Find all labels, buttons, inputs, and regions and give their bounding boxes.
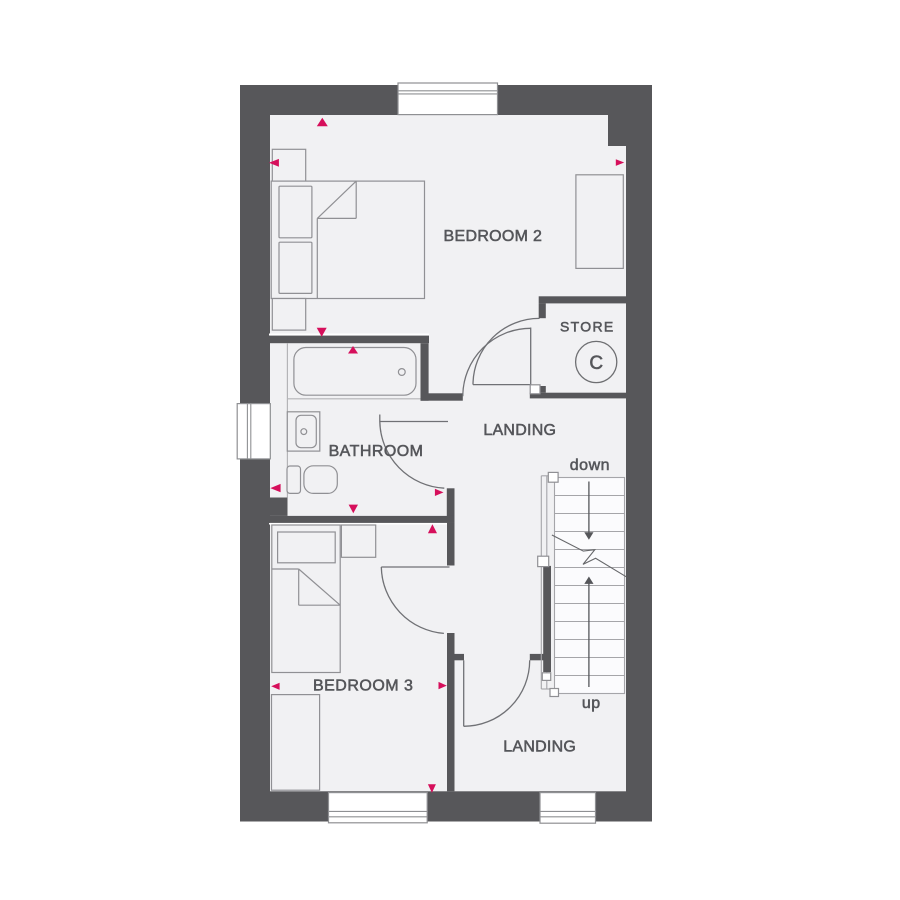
svg-text:BEDROOM 2: BEDROOM 2 bbox=[444, 228, 543, 245]
svg-text:down: down bbox=[570, 457, 610, 474]
svg-text:STORE: STORE bbox=[560, 318, 614, 334]
svg-text:LANDING: LANDING bbox=[483, 422, 556, 439]
svg-text:BEDROOM 3: BEDROOM 3 bbox=[313, 678, 414, 695]
svg-text:C: C bbox=[589, 353, 603, 374]
svg-text:BATHROOM: BATHROOM bbox=[329, 443, 424, 460]
svg-text:up: up bbox=[582, 695, 601, 712]
svg-text:LANDING: LANDING bbox=[503, 738, 576, 755]
